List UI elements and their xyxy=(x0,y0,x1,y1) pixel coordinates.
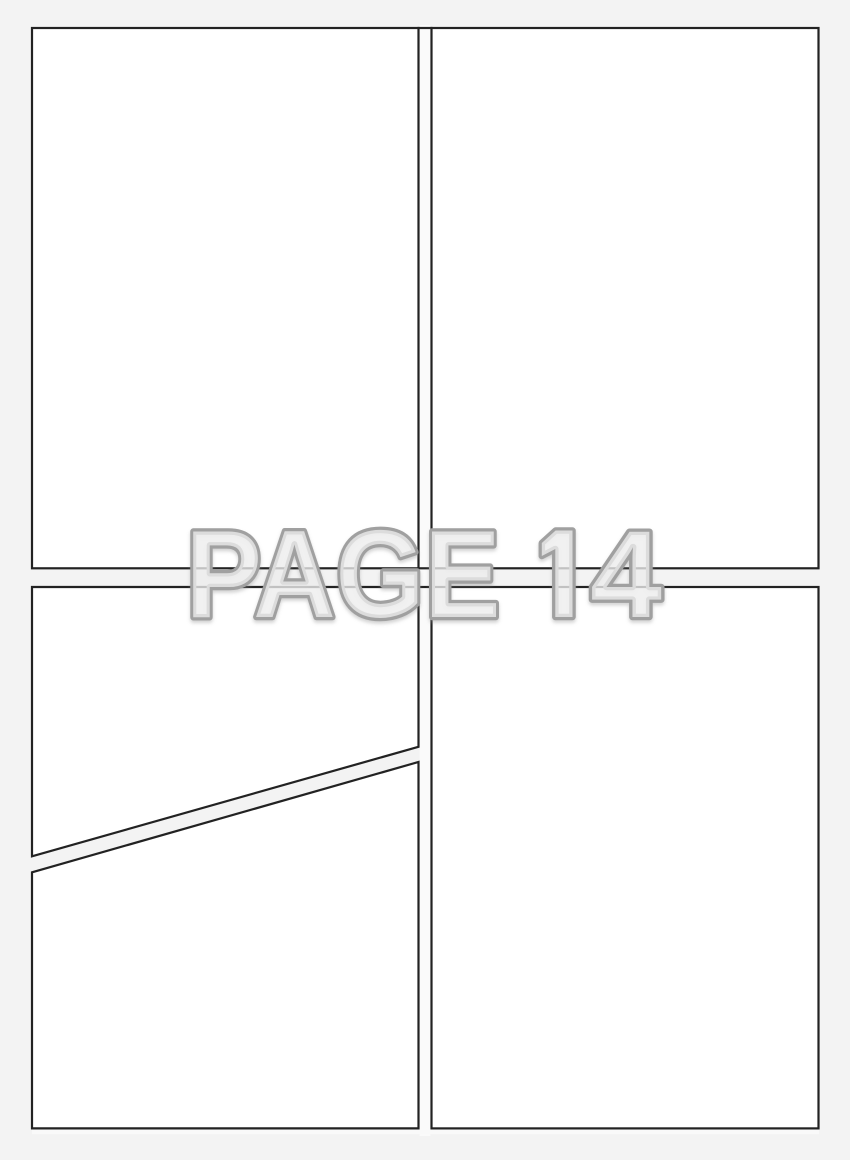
svg-text:PAGE: PAGE xyxy=(186,506,501,644)
svg-text:4: 4 xyxy=(590,504,662,643)
